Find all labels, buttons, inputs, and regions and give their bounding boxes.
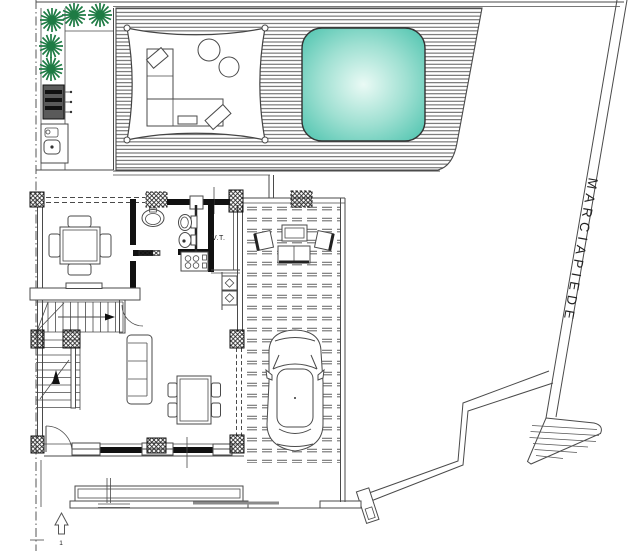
stove: [181, 252, 208, 271]
bidet: [179, 233, 196, 248]
pillar: [146, 192, 167, 207]
palm-tree: [39, 34, 63, 58]
chair: [168, 403, 177, 417]
chair: [212, 403, 221, 417]
floor-plan-canvas: MARCIAPIEDE: [0, 0, 640, 551]
chair: [49, 234, 60, 257]
sail-post: [124, 137, 130, 143]
pillar: [147, 438, 166, 453]
sink: [142, 208, 164, 227]
living-room: [127, 335, 221, 424]
palm-tree: [39, 57, 63, 81]
chair: [68, 264, 91, 275]
round-pouf: [198, 39, 220, 61]
living-dining-table: [168, 376, 221, 424]
car: [266, 330, 324, 451]
front-steps: [70, 486, 279, 508]
sidewalk: MARCIAPIEDE: [546, 0, 627, 418]
shade-sail-lounge: [124, 25, 268, 143]
technical-room-label: V.T.: [212, 235, 225, 242]
shelf: [66, 283, 102, 289]
pillar: [31, 436, 44, 453]
wall-footing: [320, 501, 361, 508]
pillar: [291, 191, 312, 207]
entry-door: [46, 426, 72, 452]
chair: [68, 216, 91, 227]
appliance: [222, 276, 237, 290]
stair-handrail: [71, 348, 76, 408]
sidewalk-label: MARCIAPIEDE: [560, 177, 600, 325]
dining-room: [49, 216, 111, 275]
sail-post: [262, 25, 268, 31]
pillar: [63, 330, 80, 348]
bathroom: [142, 208, 197, 248]
pillar: [31, 330, 44, 348]
stair-direction-arrow: [52, 370, 60, 384]
driveway-ramp: [528, 418, 602, 464]
outdoor-shower: [41, 124, 68, 163]
kitchen-counter: [222, 272, 237, 310]
round-pouf: [219, 57, 239, 77]
pillar: [30, 192, 44, 207]
patio-table: [282, 225, 307, 241]
patio-bench: [278, 246, 310, 263]
pillar: [229, 190, 243, 212]
palm-tree: [88, 3, 112, 27]
swimming-pool: [302, 28, 425, 141]
palm-tree: [40, 8, 64, 32]
side-table: [178, 116, 197, 124]
sail-post: [124, 25, 130, 31]
equipment-unit: [43, 85, 72, 119]
pillar: [230, 330, 244, 348]
sliding-door-leaf: [139, 251, 160, 256]
floor-plan-drawing: MARCIAPIEDE: [0, 0, 640, 551]
toilet: [179, 215, 198, 231]
car-body: [267, 330, 323, 451]
sail-post: [262, 137, 268, 143]
ramp-hatch: [530, 426, 600, 459]
chair: [212, 383, 221, 397]
appliance: [222, 291, 237, 305]
pillar: [230, 435, 244, 453]
entry-marker-label: 1: [59, 540, 63, 547]
north-arrow: 1: [55, 513, 68, 547]
chair: [168, 383, 177, 397]
patio-chair: [254, 231, 273, 251]
sofa: [127, 335, 152, 404]
chair: [100, 234, 111, 257]
stair-direction-arrow: [105, 314, 115, 321]
patio-chair: [315, 231, 334, 251]
palm-tree: [62, 3, 86, 27]
dining-table: [60, 227, 100, 264]
